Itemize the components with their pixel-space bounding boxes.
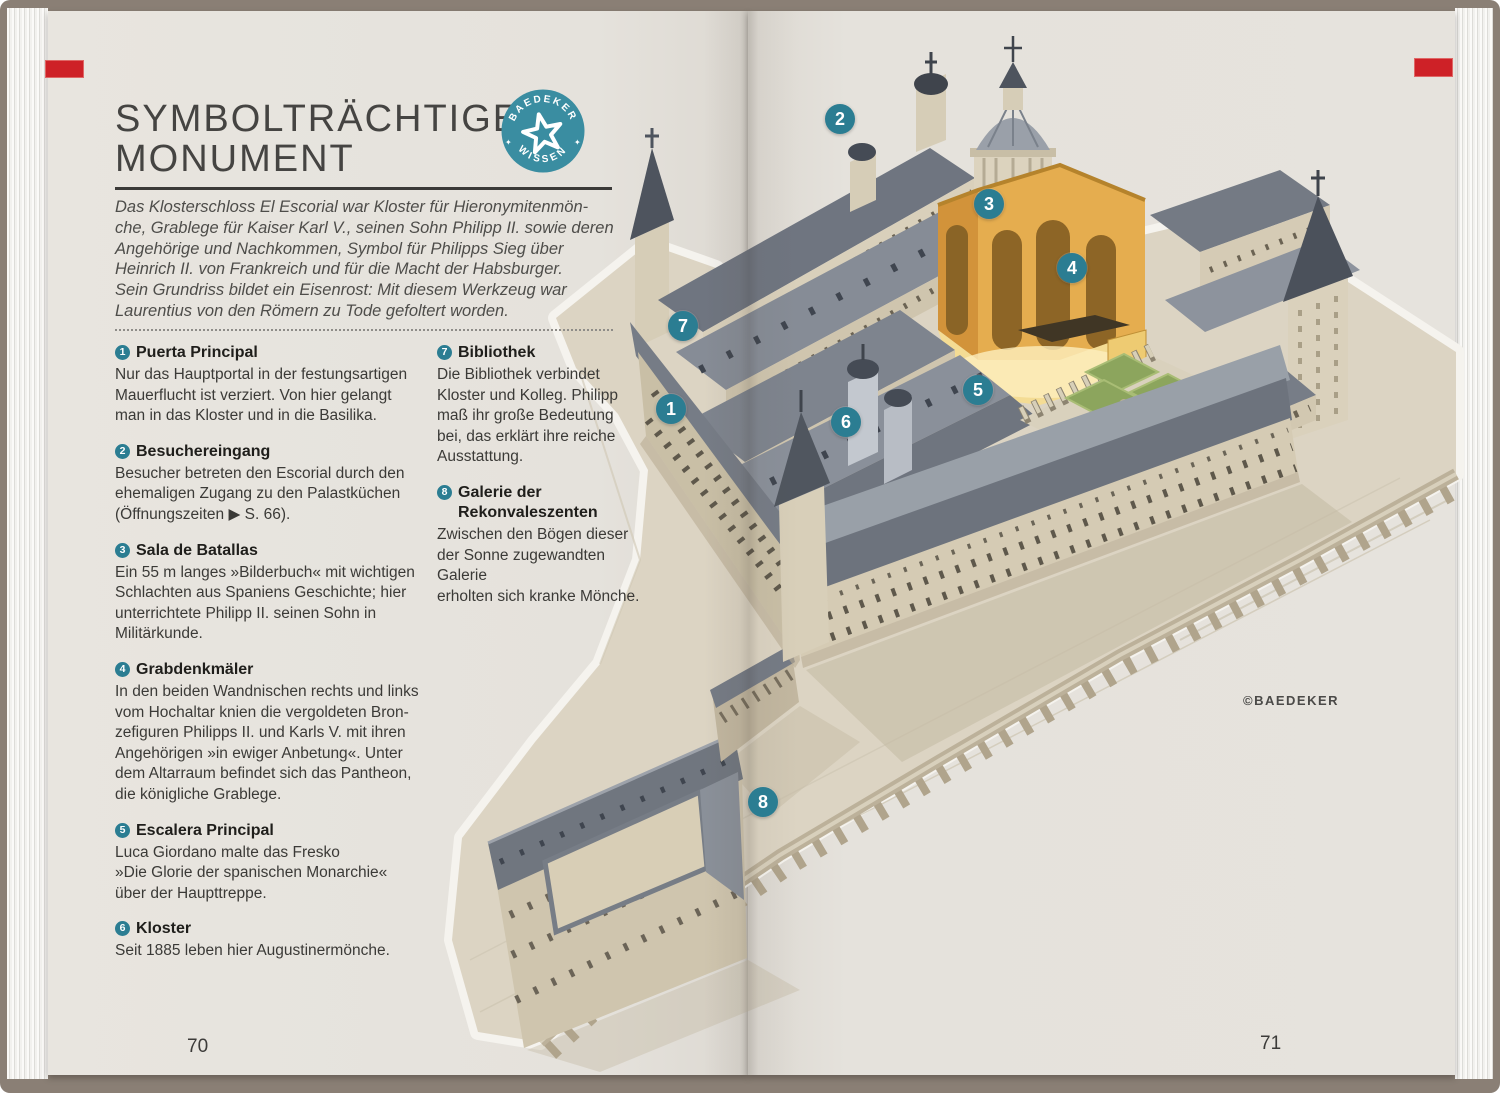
legend-item-title: Escalera Principal <box>136 821 274 841</box>
legend-item-body: Nur das Hauptportal in der festungsartig… <box>115 365 430 427</box>
legend-item-body: Ein 55 m langes »Bilderbuch« mit wichtig… <box>115 563 430 645</box>
map-marker-1: 1 <box>656 394 686 424</box>
legend-item-title: Puerta Principal <box>136 343 258 363</box>
title-rule <box>115 187 612 190</box>
page-number-right: 71 <box>1260 1033 1281 1055</box>
badge-side-star-right: ✦ <box>574 138 581 147</box>
map-marker-5: 5 <box>963 375 993 405</box>
legend-item-6: 6KlosterSeit 1885 leben hier Augustinerm… <box>115 919 430 962</box>
legend-number-badge: 2 <box>115 444 130 459</box>
baedeker-wissen-badge: BAEDEKER WISSEN ✦ ✦ <box>499 87 587 175</box>
legend-item-title: Besuchereingang <box>136 442 270 462</box>
map-marker-4: 4 <box>1057 253 1087 283</box>
legend-item-7: 7BibliothekDie Bibliothek verbindet Klos… <box>437 343 645 468</box>
legend-item-body: Seit 1885 leben hier Augustinermönche. <box>115 941 430 962</box>
legend-number-badge: 4 <box>115 662 130 677</box>
legend-item-title: Grabdenkmäler <box>136 660 253 680</box>
map-marker-2: 2 <box>825 104 855 134</box>
legend-item-2: 2BesuchereingangBesucher betreten den Es… <box>115 442 430 526</box>
legend-col-2: 7BibliothekDie Bibliothek verbindet Klos… <box>437 343 645 622</box>
legend-number-badge: 3 <box>115 543 130 558</box>
badge-side-star-left: ✦ <box>505 138 512 147</box>
legend-number-badge: 5 <box>115 823 130 838</box>
legend-number-badge: 6 <box>115 921 130 936</box>
dotted-separator <box>115 329 613 331</box>
legend-item-title: Bibliothek <box>458 343 535 363</box>
map-marker-6: 6 <box>831 407 861 437</box>
legend-item-5: 5Escalera PrincipalLuca Giordano malte d… <box>115 821 430 905</box>
legend-item-body: Luca Giordano malte das Fresko »Die Glor… <box>115 843 430 905</box>
legend-item-body: In den beiden Wandnischen rechts und lin… <box>115 682 430 806</box>
chapter-tab-red-left <box>45 60 84 78</box>
legend-item-body: Die Bibliothek verbindet Kloster und Kol… <box>437 365 645 468</box>
legend-item-4: 4GrabdenkmälerIn den beiden Wandnischen … <box>115 660 430 806</box>
legend-col-1: 1Puerta PrincipalNur das Hauptportal in … <box>115 343 430 977</box>
illustration-credit: ©BAEDEKER <box>1243 693 1339 708</box>
chapter-tab-red-right <box>1414 58 1453 77</box>
page-title-line2: MONUMENT <box>115 139 547 179</box>
legend-item-3: 3Sala de BatallasEin 55 m langes »Bilder… <box>115 541 430 645</box>
legend-item-body: Besucher betreten den Escorial durch den… <box>115 464 430 526</box>
legend-item-1: 1Puerta PrincipalNur das Hauptportal in … <box>115 343 430 427</box>
book-spread-photo: SYMBOLTRÄCHTIGES MONUMENT BAEDEKER WISSE… <box>0 0 1500 1093</box>
legend-item-body: Zwischen den Bögen dieser der Sonne zuge… <box>437 525 645 607</box>
legend-number-badge: 7 <box>437 345 452 360</box>
page-title-line1: SYMBOLTRÄCHTIGES <box>115 99 547 139</box>
legend-item-8: 8Galerie der RekonvaleszentenZwischen de… <box>437 483 645 607</box>
map-marker-8: 8 <box>748 787 778 817</box>
page-title: SYMBOLTRÄCHTIGES MONUMENT <box>115 99 547 179</box>
legend-item-title: Galerie der Rekonvaleszenten <box>458 483 598 523</box>
legend-number-badge: 1 <box>115 345 130 360</box>
page-number-left: 70 <box>187 1036 208 1058</box>
legend-number-badge: 8 <box>437 485 452 500</box>
intro-paragraph: Das Klosterschloss El Escorial war Klost… <box>115 197 627 322</box>
map-marker-7: 7 <box>668 311 698 341</box>
legend-item-title: Sala de Batallas <box>136 541 258 561</box>
legend-item-title: Kloster <box>136 919 191 939</box>
map-marker-3: 3 <box>974 189 1004 219</box>
